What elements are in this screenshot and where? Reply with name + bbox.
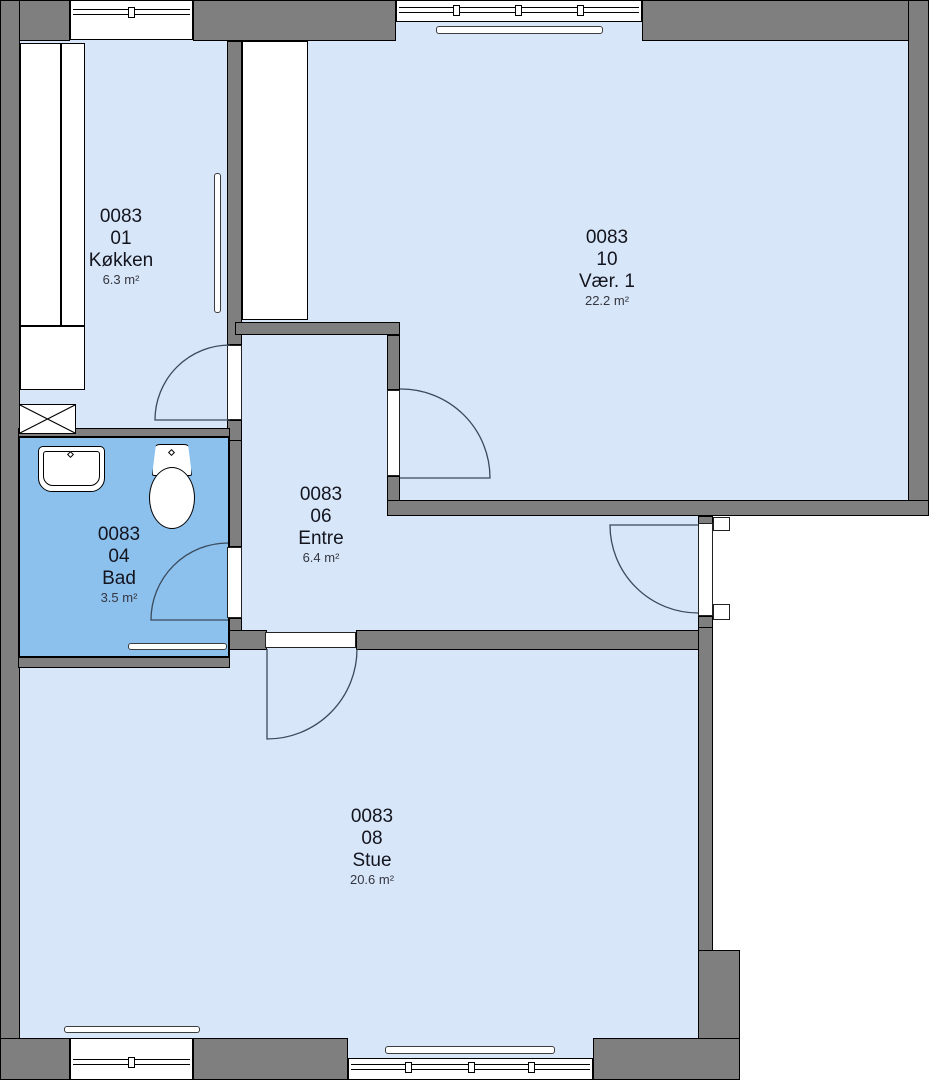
window-post xyxy=(468,1062,475,1073)
window-post xyxy=(128,7,135,18)
vent-shaft-cross-icon xyxy=(20,405,75,433)
window-post xyxy=(405,1062,412,1073)
window-post xyxy=(577,5,584,16)
radiator-bad xyxy=(128,643,227,650)
room-code: 0083 xyxy=(579,227,635,249)
wall-left-exterior xyxy=(0,0,20,1080)
radiator-stue-left xyxy=(64,1026,200,1033)
door-jamb-stue xyxy=(265,632,356,648)
room-label-stue: 0083 08 Stue 20.6 m² xyxy=(350,806,394,887)
wall-top-right xyxy=(642,0,910,41)
wall-top-middle xyxy=(193,0,396,41)
wall-vaer1-bottom xyxy=(387,500,929,516)
landing-jamb-bottom xyxy=(713,604,730,620)
room-unit: 10 xyxy=(579,249,635,271)
room-label-vaer1: 0083 10 Vær. 1 22.2 m² xyxy=(579,227,635,308)
room-unit: 01 xyxy=(89,228,153,250)
wardrobe xyxy=(242,41,308,320)
window-kitchen xyxy=(70,0,193,40)
room-area: 3.5 m² xyxy=(98,590,140,605)
room-code: 0083 xyxy=(98,524,140,546)
door-jamb-kitchen xyxy=(227,345,242,420)
wall-kitchen-right-upper xyxy=(227,41,242,345)
door-jamb-vaer1 xyxy=(387,390,400,476)
door-jamb-bad xyxy=(227,547,242,618)
vent-shaft xyxy=(19,404,76,434)
room-name: Stue xyxy=(350,850,394,872)
wall-stue-bottom-middle xyxy=(193,1038,348,1080)
radiator-stue-center xyxy=(385,1046,555,1054)
counter-shelf-line xyxy=(21,325,84,327)
wall-stue-top-right xyxy=(356,630,700,650)
room-label-koekken: 0083 01 Køkken 6.3 m² xyxy=(89,206,153,287)
room-unit: 06 xyxy=(298,506,343,528)
room-code: 0083 xyxy=(298,484,343,506)
radiator-vaer1 xyxy=(436,26,603,34)
wall-right-exterior xyxy=(908,0,929,516)
room-code: 0083 xyxy=(350,806,394,828)
landing-jamb-top xyxy=(713,517,730,531)
window-post xyxy=(515,5,522,16)
room-area: 6.4 m² xyxy=(298,550,343,565)
room-area: 22.2 m² xyxy=(579,293,635,308)
window-post xyxy=(453,5,460,16)
room-area: 6.3 m² xyxy=(89,272,153,287)
window-post xyxy=(128,1057,135,1068)
room-name: Vær. 1 xyxy=(579,271,635,293)
room-unit: 08 xyxy=(350,828,394,850)
room-label-bad: 0083 04 Bad 3.5 m² xyxy=(98,524,140,605)
wall-stue-right xyxy=(698,627,713,952)
toilet-bowl xyxy=(149,467,195,529)
radiator-kitchen xyxy=(214,173,221,313)
wall-stue-top-left xyxy=(227,630,267,650)
wall-vaer1-left-upper xyxy=(387,335,400,390)
room-label-entre: 0083 06 Entre 6.4 m² xyxy=(298,484,343,565)
window-vaer1 xyxy=(396,0,642,22)
floor-plan: 0083 01 Køkken 6.3 m² 0083 10 Vær. 1 22.… xyxy=(0,0,929,1080)
wall-stue-bottom-right xyxy=(593,1038,740,1080)
room-name: Entre xyxy=(298,528,343,550)
window-post xyxy=(528,1062,535,1073)
room-name: Køkken xyxy=(89,250,153,272)
room-code: 0083 xyxy=(89,206,153,228)
room-unit: 04 xyxy=(98,546,140,568)
window-stue-left xyxy=(70,1038,193,1080)
wall-stue-bottom-left xyxy=(0,1038,70,1080)
wall-entre-top-stub xyxy=(235,322,400,335)
window-stue-center xyxy=(348,1058,593,1080)
room-name: Bad xyxy=(98,568,140,590)
door-jamb-entrance xyxy=(698,523,713,616)
counter-divider-line xyxy=(60,44,62,325)
room-area: 20.6 m² xyxy=(350,872,394,887)
kitchen-counter xyxy=(20,43,85,390)
